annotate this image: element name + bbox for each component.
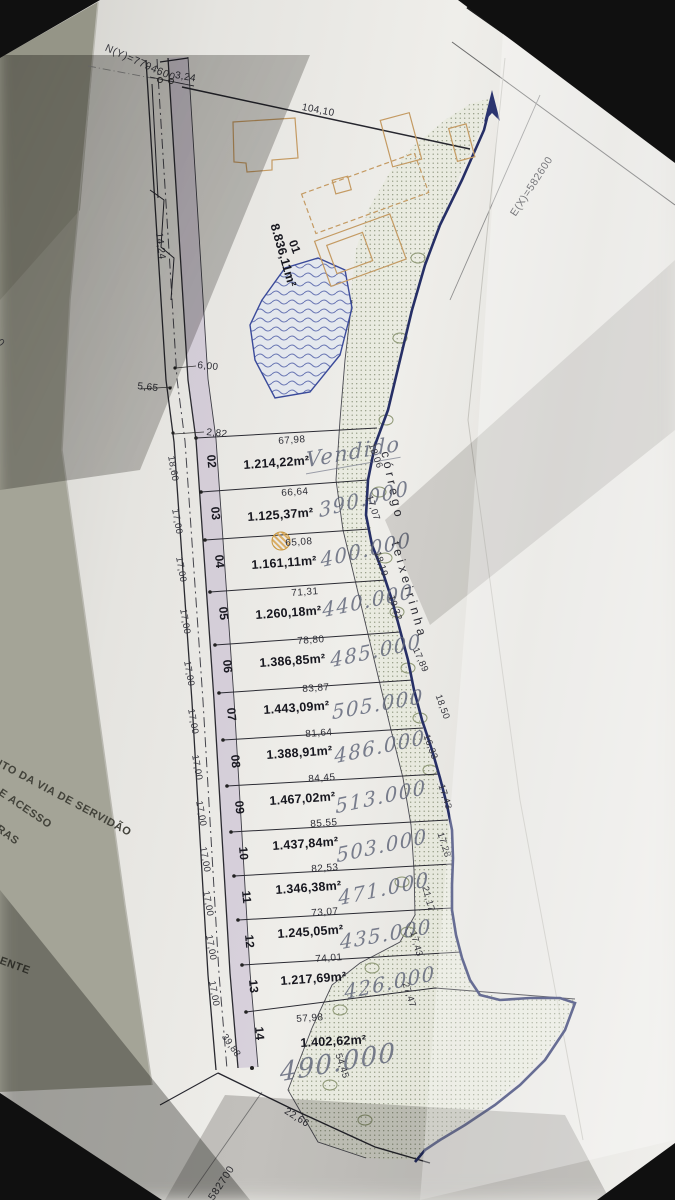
lot-07-area: 1.443,09m² bbox=[263, 698, 330, 717]
margin-note-nente: NENTE bbox=[0, 952, 32, 977]
lot-05-area: 1.260,18m² bbox=[255, 603, 322, 622]
grid-label-east: E(X)=582600 bbox=[508, 154, 556, 218]
lot-04-right: 18,19 bbox=[372, 550, 390, 578]
road-band bbox=[168, 57, 258, 1068]
road-centerline bbox=[157, 59, 227, 1069]
lot-09-number: 09 bbox=[232, 800, 247, 815]
lot-11-note: 471.000 bbox=[338, 867, 430, 911]
lot-03-right: 17,07 bbox=[364, 494, 382, 522]
lot-08-area: 1.388,91m² bbox=[266, 743, 333, 762]
lot-13-note: 426.000 bbox=[344, 961, 436, 1005]
map-frame-lines bbox=[88, 6, 675, 1198]
lot-05-number: 05 bbox=[216, 606, 231, 621]
lot-12-number: 12 bbox=[242, 934, 257, 949]
neighbor-step-line bbox=[150, 190, 174, 300]
tie-point-circles bbox=[140, 78, 204, 435]
lot-05-note: 440.000 bbox=[322, 579, 414, 623]
lot-04-area: 1.161,11m² bbox=[251, 553, 317, 572]
grid-line-south bbox=[188, 1092, 262, 1198]
lot-07-note: 505.000 bbox=[332, 684, 424, 725]
building-outline bbox=[327, 232, 373, 273]
lot-divider-lines bbox=[196, 428, 575, 1012]
pond bbox=[250, 258, 352, 398]
lot-12-note: 435.000 bbox=[340, 914, 432, 955]
lot-10-front: 85,55 bbox=[310, 817, 338, 830]
lot-02-number: 02 bbox=[204, 454, 219, 469]
fold-highlight-right bbox=[0, 0, 675, 1200]
building-outline bbox=[315, 214, 407, 286]
lot-14-left: 39,88 bbox=[219, 1032, 243, 1059]
folded-sheet-area bbox=[0, 2, 152, 1092]
pond-dim-b: 5,65 bbox=[137, 381, 159, 394]
lot-05-right: 19,32 bbox=[386, 594, 404, 622]
lot-14-bottom: 22,66 bbox=[282, 1106, 311, 1130]
pond-dim-c: 2,82 bbox=[206, 427, 228, 440]
road-right-line bbox=[168, 58, 238, 1068]
lot-12-front: 73,07 bbox=[311, 906, 339, 919]
stream-name-word1: córrego bbox=[378, 450, 406, 522]
building-outline bbox=[380, 113, 421, 167]
lot-14-number: 14 bbox=[252, 1026, 267, 1041]
bottom-boundary bbox=[218, 1073, 430, 1163]
lot-12-left: 17,00 bbox=[203, 934, 218, 961]
lot-08-number: 08 bbox=[228, 754, 243, 769]
tie-dim: 3,24 bbox=[174, 70, 197, 84]
folded-sheet-shadow bbox=[0, 2, 98, 300]
lot-08-right: 16,33 bbox=[421, 733, 440, 761]
fold-shadow-top-left bbox=[0, 0, 675, 1200]
lot-10-area: 1.437,84m² bbox=[272, 834, 339, 853]
survey-tick-dots bbox=[168, 366, 254, 1070]
lot-12-right: 17,43 bbox=[407, 930, 424, 958]
lot-04-left: 17,00 bbox=[173, 556, 188, 583]
lot-11-left: 17,00 bbox=[200, 890, 215, 917]
lot-05-front: 71,31 bbox=[291, 586, 319, 599]
lot-14-right: 54,45 bbox=[333, 1052, 351, 1080]
plan-linework bbox=[0, 0, 675, 1200]
road-left-line bbox=[146, 60, 216, 1070]
building-outline bbox=[449, 124, 475, 162]
lot-14-area: 1.402,62m² bbox=[300, 1033, 367, 1050]
grid-line-north bbox=[88, 66, 194, 86]
lot-10-right: 17,28 bbox=[435, 831, 453, 859]
lot-03-front: 66,64 bbox=[281, 486, 309, 499]
building-outline bbox=[233, 118, 298, 172]
lot-11-front: 82,53 bbox=[311, 862, 339, 875]
lot-06-area: 1.386,85m² bbox=[259, 651, 326, 670]
lot-08-left: 17,00 bbox=[189, 754, 204, 781]
boundary-lines bbox=[150, 58, 470, 1163]
lot-03-note: 390.000 bbox=[318, 475, 410, 522]
building-outline bbox=[332, 176, 351, 194]
lot-04-note: 400.000 bbox=[320, 527, 412, 572]
lot-02-right: 18,06 bbox=[366, 442, 385, 470]
lot-04-front: 65,08 bbox=[285, 536, 313, 549]
lot-06-number: 06 bbox=[220, 659, 235, 674]
margin-note-aras: ARAS bbox=[0, 818, 21, 847]
tree-symbols bbox=[323, 253, 437, 1125]
lot-01-area: 8.836,11m² bbox=[268, 222, 299, 289]
plan-labels: N(Y)=7794600 E(X)=582600 582700 00 3,24 … bbox=[0, 0, 675, 1200]
lot-06-front: 78,80 bbox=[297, 634, 325, 647]
buildings-group bbox=[233, 113, 475, 287]
lot-06-left: 17,00 bbox=[181, 660, 196, 687]
lot-07-left: 17,00 bbox=[185, 708, 200, 735]
fold-shadow-bottom-left bbox=[0, 0, 675, 1200]
lot-03-left: 17,00 bbox=[169, 508, 184, 535]
lot-09-note: 513.000 bbox=[335, 775, 427, 819]
lot-10-left: 17,00 bbox=[197, 846, 212, 873]
grid-label-south-partial: 582700 bbox=[206, 1164, 237, 1200]
road-dim: 14,24 bbox=[153, 232, 167, 260]
lot-03-number: 03 bbox=[208, 506, 223, 521]
photo-of-survey-plan: N(Y)=7794600 E(X)=582600 582700 00 3,24 … bbox=[0, 0, 675, 1200]
top-boundary bbox=[182, 87, 470, 149]
grid-label-north: N(Y)=7794600 bbox=[103, 42, 177, 84]
lot-13-front: 74,01 bbox=[315, 952, 343, 965]
pond-dim-a: 6,00 bbox=[197, 360, 219, 373]
sheet-fold-edge bbox=[62, 2, 152, 1085]
road bbox=[146, 57, 258, 1070]
lot-06-right: 17,89 bbox=[410, 646, 431, 674]
lot-11-number: 11 bbox=[239, 890, 254, 904]
stream-name-word2: teixeirinha bbox=[389, 540, 430, 641]
lot-14-front: 57,98 bbox=[296, 1012, 324, 1025]
margin-note-servidao: ENTO DA VIA DE SERVIDÃO bbox=[0, 752, 133, 839]
margin-note-acesso: DE ACESSO bbox=[0, 782, 54, 831]
app-offset-line bbox=[288, 300, 415, 1158]
riparian-stipple-zone bbox=[288, 98, 575, 1160]
lot-14-note: 490.000 bbox=[280, 1038, 396, 1089]
building-outline bbox=[302, 153, 429, 234]
grid-line-east bbox=[450, 95, 540, 300]
lot-12-area: 1.245,05m² bbox=[277, 922, 344, 941]
lot-09-left: 17,00 bbox=[193, 800, 208, 827]
lot-07-front: 83,87 bbox=[302, 682, 330, 695]
top-boundary-dim: 104,10 bbox=[301, 102, 335, 119]
paper-sheet: N(Y)=7794600 E(X)=582600 582700 00 3,24 … bbox=[0, 0, 675, 1200]
lot-02-front: 67,98 bbox=[278, 434, 306, 447]
lot-09-area: 1.467,02m² bbox=[269, 789, 336, 808]
lot-05-left: 17,00 bbox=[177, 608, 192, 635]
lot-10-number: 10 bbox=[236, 846, 251, 861]
lot-10-note: 503.000 bbox=[336, 824, 428, 868]
lot-13-area: 1.217,69m² bbox=[280, 969, 347, 988]
stream-line bbox=[366, 90, 575, 1162]
lot-13-number: 13 bbox=[246, 979, 261, 994]
lot-07-right: 18,50 bbox=[433, 693, 452, 721]
lot-07-number: 07 bbox=[224, 707, 239, 722]
lot-11-right: 21,17 bbox=[419, 885, 436, 913]
fold-shadow-right bbox=[0, 0, 675, 1200]
folded-margin-sheet bbox=[0, 0, 675, 1200]
lot-02-area: 1.214,22m² bbox=[243, 453, 310, 472]
grid-label-west-partial: 00 bbox=[0, 332, 7, 350]
lot-06-note: 485.000 bbox=[330, 629, 422, 673]
lot-08-note: 486.000 bbox=[334, 725, 426, 769]
flow-arrow-icon bbox=[484, 90, 500, 122]
fold-shadow-bottom bbox=[0, 0, 675, 1200]
lot-13-right: 27,47 bbox=[400, 981, 418, 1009]
road-band-edge bbox=[188, 57, 258, 1067]
hatched-tree-symbol bbox=[272, 532, 290, 550]
lot-02-note: Vendido bbox=[306, 431, 400, 474]
lot-02-left: 18,60 bbox=[165, 455, 180, 482]
paper-crease-line bbox=[468, 58, 583, 1140]
lot-08-front: 81,64 bbox=[305, 727, 333, 740]
lot-03-area: 1.125,37m² bbox=[247, 505, 314, 524]
lot-04-number: 04 bbox=[212, 554, 227, 569]
lot-09-right: 17,43 bbox=[436, 783, 454, 811]
lot-11-area: 1.346,38m² bbox=[275, 878, 342, 897]
lot-13-left: 17,00 bbox=[206, 980, 221, 1007]
lot-09-front: 84,45 bbox=[308, 772, 336, 785]
lot-01-number: 01 bbox=[286, 238, 304, 255]
